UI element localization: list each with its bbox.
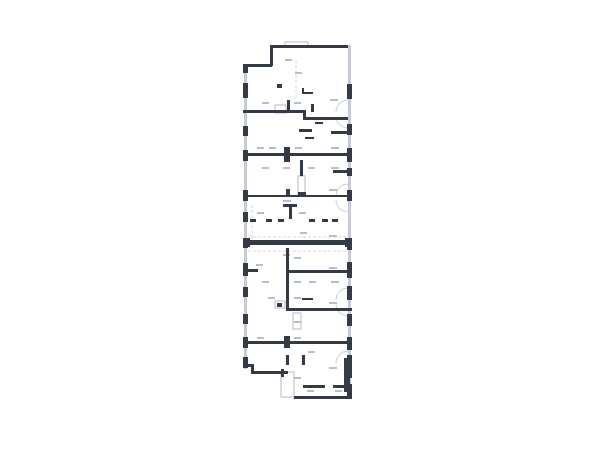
wall-segment — [302, 88, 304, 94]
label-smudge — [295, 72, 302, 74]
label-smudge — [262, 281, 269, 283]
wall-segment — [243, 83, 248, 98]
wall-segment — [243, 238, 250, 247]
floor-plan-svg — [0, 0, 600, 450]
label-smudge — [329, 235, 337, 237]
label-smudge — [262, 167, 269, 169]
wall-segment — [278, 219, 284, 222]
wall-segment — [286, 248, 289, 310]
wall-segment — [347, 314, 352, 326]
wall-segment — [303, 117, 348, 120]
label-smudge — [309, 281, 316, 283]
label-smudge — [308, 351, 315, 353]
label-smudge — [330, 99, 338, 101]
wall-segment — [270, 45, 348, 48]
label-smudge — [283, 200, 291, 202]
wall-segment — [286, 270, 352, 273]
wall-segment — [347, 84, 352, 99]
wall-segment — [284, 147, 290, 162]
label-smudge — [285, 59, 292, 61]
wall-segment — [266, 219, 272, 222]
wall-segment — [333, 170, 352, 173]
wall-segment — [243, 287, 248, 297]
wall-segment — [309, 219, 315, 222]
wall-segment — [284, 336, 290, 348]
label-smudge — [300, 232, 307, 234]
label-smudge — [257, 212, 264, 214]
wall-segment — [286, 308, 352, 311]
label-smudge — [329, 267, 337, 269]
wall-segment — [243, 110, 305, 113]
wall-segment — [286, 189, 290, 197]
wall-segment — [311, 104, 314, 112]
wall-segment — [286, 355, 289, 365]
label-smudge — [331, 147, 339, 149]
label-smudge — [294, 337, 301, 339]
wall-segment — [277, 84, 282, 88]
label-smudge — [331, 281, 339, 283]
wall-segment — [302, 355, 305, 365]
label-smudge — [294, 321, 301, 323]
label-smudge — [262, 102, 269, 104]
label-smudge — [294, 102, 301, 104]
label-smudge — [331, 167, 339, 169]
wall-segment — [294, 396, 352, 399]
door-swing-arc — [336, 184, 348, 196]
wall-segment — [243, 269, 258, 272]
wall-segment — [287, 100, 290, 110]
wall-segment — [347, 286, 352, 300]
label-smudge — [256, 264, 263, 266]
wall-segment — [277, 303, 282, 307]
label-smudge — [335, 390, 342, 392]
wall-segment — [243, 126, 248, 136]
wall-segment — [243, 240, 352, 245]
label-smudge — [268, 297, 275, 299]
wall-segment — [243, 153, 352, 156]
door-swing-arc — [336, 288, 348, 300]
wall-segment — [289, 204, 292, 219]
wall-segment — [243, 314, 248, 324]
wall-segment — [243, 341, 352, 344]
label-smudge — [308, 167, 315, 169]
label-smudge — [294, 377, 301, 379]
door-swing-arc — [336, 200, 348, 212]
label-smudge — [269, 147, 276, 149]
wall-segment — [331, 131, 352, 134]
wall-segment — [303, 385, 325, 388]
wall-segment — [299, 129, 312, 132]
label-smudge — [257, 147, 264, 149]
label-smudge — [329, 367, 337, 369]
wall-segment — [344, 358, 350, 392]
label-smudge — [329, 302, 337, 304]
label-smudge — [329, 189, 337, 191]
wall-segment — [333, 385, 345, 388]
wall-segment — [332, 219, 338, 222]
wall-segment — [300, 160, 303, 176]
door-swing-arc — [336, 100, 348, 112]
wall-segment — [305, 137, 314, 139]
label-smudge — [283, 167, 290, 169]
label-smudge — [307, 390, 314, 392]
wall-segment — [243, 64, 248, 73]
wall-segment — [250, 219, 256, 222]
wall-segment — [302, 298, 313, 300]
label-smudge — [295, 147, 302, 149]
wall-segment — [345, 238, 352, 247]
wall-segment — [315, 122, 323, 124]
label-smudge — [257, 337, 264, 339]
wall-segment — [281, 369, 284, 377]
label-smudge — [299, 212, 306, 214]
wall-segment — [322, 219, 328, 222]
label-smudge — [294, 257, 301, 259]
floor-plan-page — [0, 0, 600, 450]
wall-segment — [243, 212, 248, 222]
wall-segment — [243, 195, 352, 197]
label-smudge — [294, 281, 301, 283]
label-smudge — [294, 297, 301, 299]
wall-segment — [270, 45, 273, 66]
